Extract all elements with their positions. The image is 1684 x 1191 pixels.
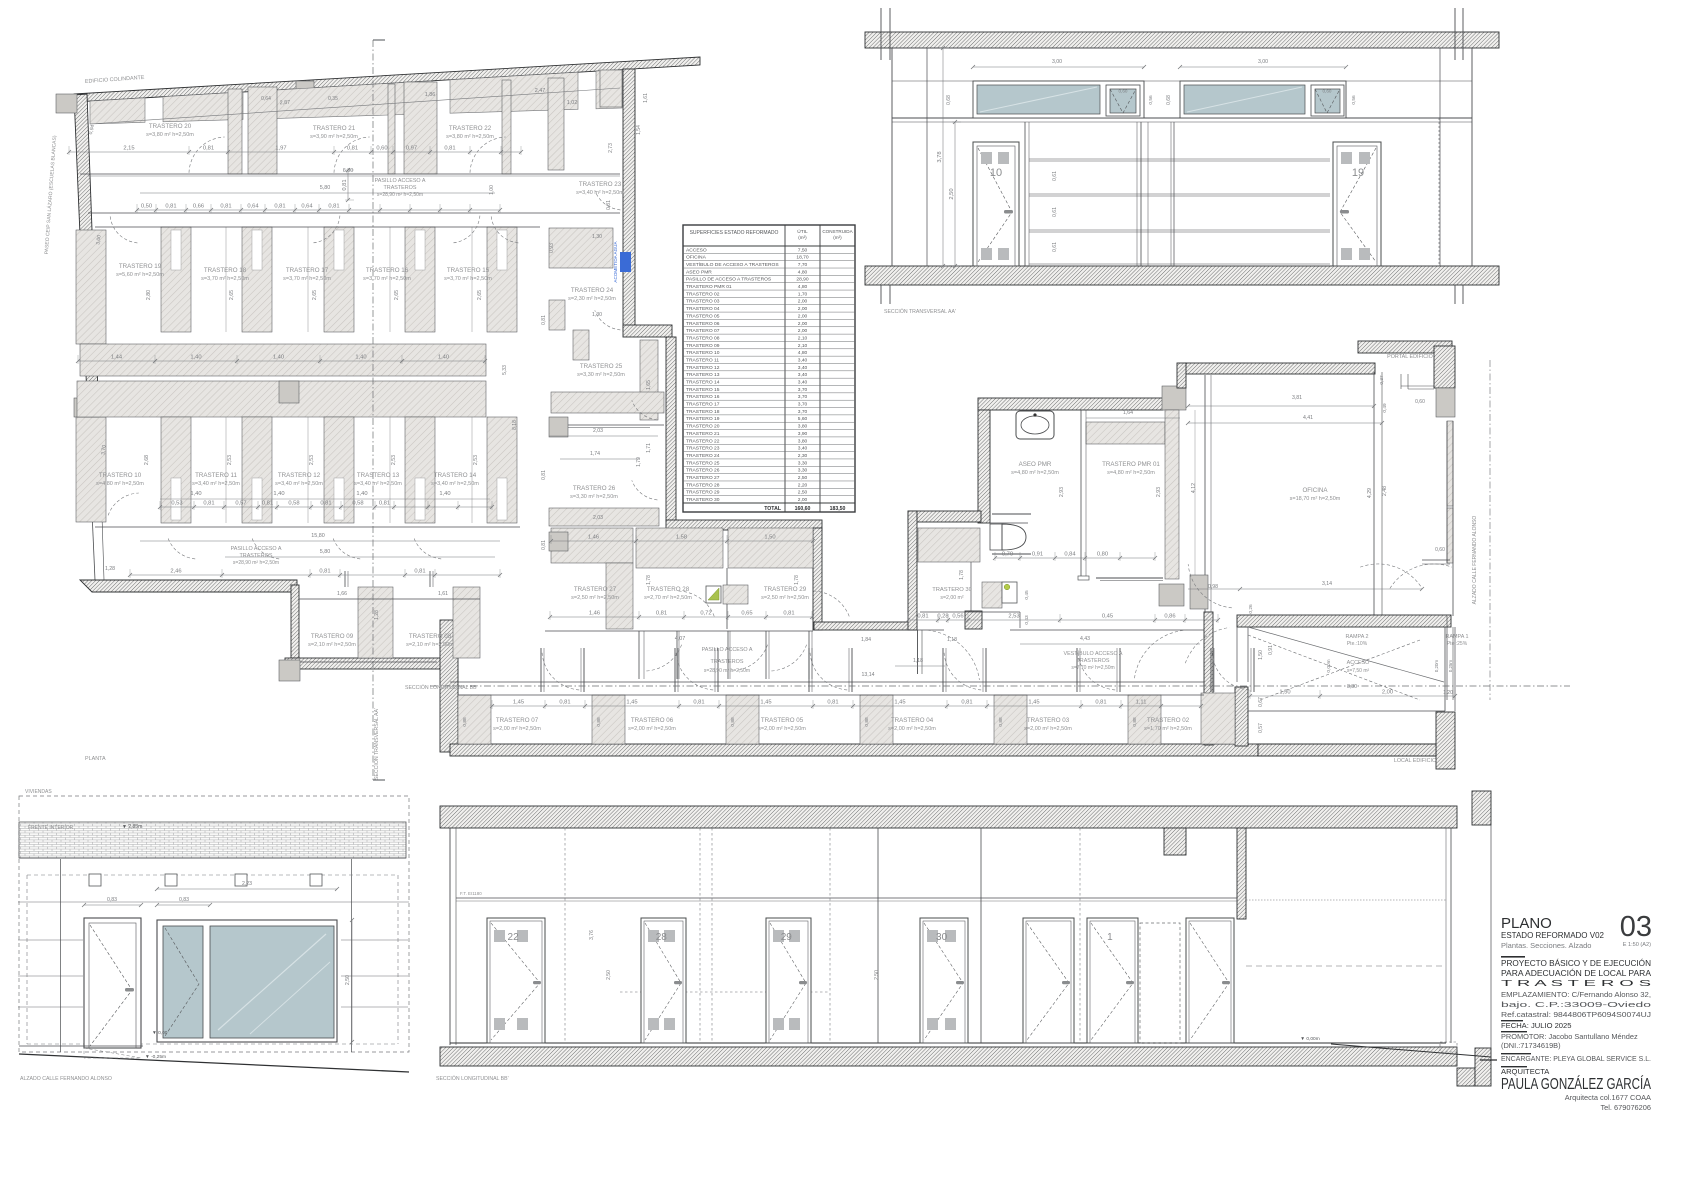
svg-text:TRASTERO 25: TRASTERO 25 — [580, 363, 623, 370]
svg-text:2,48: 2,48 — [1382, 486, 1388, 496]
svg-text:ASEO PMR: ASEO PMR — [1019, 461, 1052, 468]
svg-text:FRENTE INTERIOR: FRENTE INTERIOR — [28, 825, 74, 831]
svg-text:2,68: 2,68 — [144, 455, 150, 465]
svg-text:2,65: 2,65 — [229, 290, 235, 300]
svg-text:0,88: 0,88 — [864, 717, 870, 727]
svg-text:3,70: 3,70 — [798, 409, 808, 415]
svg-text:1,40: 1,40 — [190, 355, 201, 361]
svg-text:0,57: 0,57 — [235, 501, 246, 507]
svg-text:0,86: 0,86 — [1164, 614, 1175, 620]
svg-text:2,00: 2,00 — [798, 328, 808, 334]
svg-text:10: 10 — [990, 167, 1002, 179]
svg-text:SECCIÓN LONGITUDINAL BB': SECCIÓN LONGITUDINAL BB' — [436, 1075, 509, 1082]
svg-text:SECCIÓN TRANSVERSAL AA': SECCIÓN TRANSVERSAL AA' — [373, 708, 380, 780]
svg-text:ACCESO: ACCESO — [1347, 660, 1370, 666]
svg-text:1,40: 1,40 — [355, 355, 366, 361]
svg-text:s=3,80 m² h=2,50m: s=3,80 m² h=2,50m — [146, 132, 194, 138]
svg-text:2,30: 2,30 — [798, 453, 808, 459]
svg-text:1,50: 1,50 — [1258, 650, 1264, 660]
svg-text:0,81: 0,81 — [541, 470, 547, 480]
svg-text:0,81: 0,81 — [328, 204, 339, 210]
svg-text:PORTAL EDIFICIO: PORTAL EDIFICIO — [1387, 354, 1433, 360]
svg-text:2,03: 2,03 — [593, 515, 603, 521]
svg-text:TRASTERO 04: TRASTERO 04 — [891, 717, 934, 724]
svg-text:3,40: 3,40 — [798, 372, 808, 378]
svg-text:TRASTERO 10: TRASTERO 10 — [99, 472, 142, 479]
svg-text:TRASTERO 24: TRASTERO 24 — [686, 453, 720, 459]
svg-text:0,93: 0,93 — [549, 243, 555, 253]
svg-text:0,65: 0,65 — [741, 611, 752, 617]
svg-text:s=4,80 m² h=2,50m: s=4,80 m² h=2,50m — [96, 481, 144, 487]
svg-text:TRASTERO 26: TRASTERO 26 — [686, 468, 720, 474]
svg-text:0,88: 0,88 — [596, 717, 602, 727]
svg-text:2,00: 2,00 — [798, 313, 808, 319]
svg-text:ÚTIL: ÚTIL — [797, 228, 808, 235]
svg-text:0,88: 0,88 — [730, 717, 736, 727]
svg-text:1,45: 1,45 — [626, 700, 637, 706]
svg-text:2,47: 2,47 — [535, 88, 546, 94]
svg-text:1,61: 1,61 — [643, 93, 649, 103]
svg-text:(DNI.:71734619B): (DNI.:71734619B) — [1501, 1041, 1561, 1050]
svg-text:0,81: 0,81 — [165, 204, 176, 210]
svg-text:1,74: 1,74 — [590, 451, 600, 457]
svg-text:1,30: 1,30 — [592, 234, 602, 240]
svg-text:TRASTERO 04: TRASTERO 04 — [686, 306, 720, 312]
svg-text:2,65: 2,65 — [312, 290, 318, 300]
svg-text:PROMOTOR: Jacobo Santullano Mé: PROMOTOR: Jacobo Santullano Méndez — [1501, 1032, 1638, 1041]
svg-text:0,88: 0,88 — [462, 717, 468, 727]
svg-text:1,40: 1,40 — [190, 491, 201, 497]
svg-text:4,12: 4,12 — [1191, 483, 1197, 493]
svg-text:1,97: 1,97 — [275, 146, 286, 152]
svg-text:3,30: 3,30 — [798, 468, 808, 474]
svg-text:ESTADO REFORMADO V02: ESTADO REFORMADO V02 — [1501, 931, 1605, 940]
svg-text:4,29: 4,29 — [1367, 488, 1373, 498]
svg-text:1,54: 1,54 — [636, 125, 642, 135]
svg-text:2,53: 2,53 — [309, 455, 315, 465]
svg-text:2,73: 2,73 — [608, 143, 614, 153]
svg-text:TRASTERO 20: TRASTERO 20 — [149, 123, 192, 130]
svg-text:3,70: 3,70 — [798, 402, 808, 408]
svg-text:0,68: 0,68 — [946, 95, 952, 105]
svg-text:2,00: 2,00 — [798, 497, 808, 503]
svg-text:0,81: 0,81 — [559, 700, 570, 706]
svg-text:0,91: 0,91 — [1032, 552, 1043, 558]
svg-text:2,65: 2,65 — [477, 290, 483, 300]
svg-text:0,28: 0,28 — [937, 614, 948, 620]
svg-text:1: 1 — [1107, 932, 1113, 943]
svg-text:0,20m: 0,20m — [1434, 660, 1439, 673]
svg-text:0,81: 0,81 — [917, 614, 928, 620]
svg-text:TRASTEROS: TRASTEROS — [711, 659, 744, 665]
svg-text:183,50: 183,50 — [830, 506, 846, 512]
svg-text:0,88: 0,88 — [1132, 717, 1138, 727]
svg-text:0,81: 0,81 — [606, 200, 612, 210]
svg-text:0,81: 0,81 — [319, 569, 330, 575]
svg-text:s=2,10 m² h=2,50m: s=2,10 m² h=2,50m — [406, 642, 454, 648]
svg-text:▼ 0,00m: ▼ 0,00m — [1300, 1036, 1319, 1042]
svg-text:0,81: 0,81 — [827, 700, 838, 706]
svg-text:TRASTERO 29: TRASTERO 29 — [764, 586, 807, 593]
svg-text:s=4,80 m² h=2,50m: s=4,80 m² h=2,50m — [1011, 470, 1059, 476]
svg-text:TRASTERO 22: TRASTERO 22 — [686, 438, 720, 444]
svg-text:0,64: 0,64 — [301, 204, 313, 210]
svg-text:0,60: 0,60 — [1415, 399, 1425, 405]
svg-text:2,03: 2,03 — [593, 428, 603, 434]
svg-text:TRASTERO 02: TRASTERO 02 — [1147, 717, 1190, 724]
svg-text:3,40: 3,40 — [798, 365, 808, 371]
svg-text:s=3,40 m² h=2,50m: s=3,40 m² h=2,50m — [192, 481, 240, 487]
svg-text:TRASTERO 16: TRASTERO 16 — [686, 394, 720, 400]
svg-text:s=7,70 m² h=2,50m: s=7,70 m² h=2,50m — [1071, 665, 1114, 671]
svg-text:PLANTA: PLANTA — [85, 756, 106, 762]
svg-text:Arquitecta col.1677 COAA: Arquitecta col.1677 COAA — [1565, 1093, 1651, 1102]
svg-text:2,50: 2,50 — [874, 970, 880, 980]
svg-text:ASEO PMR: ASEO PMR — [686, 269, 712, 275]
svg-text:29: 29 — [781, 932, 793, 943]
svg-text:0,84: 0,84 — [1064, 552, 1076, 558]
svg-text:TRASTEROS: TRASTEROS — [1077, 658, 1110, 664]
svg-text:0,81: 0,81 — [220, 204, 231, 210]
svg-text:s=3,80 m² h=2,50m: s=3,80 m² h=2,50m — [446, 134, 494, 140]
svg-text:(m²): (m²) — [798, 235, 807, 240]
svg-text:03: 03 — [1620, 911, 1652, 943]
svg-text:2,80: 2,80 — [146, 290, 152, 300]
svg-text:LOCAL EDIFICIO: LOCAL EDIFICIO — [1394, 758, 1436, 764]
svg-text:T R A S T E R O S: T R A S T E R O S — [1501, 979, 1652, 988]
svg-text:1,66: 1,66 — [337, 591, 347, 597]
svg-text:1,45: 1,45 — [513, 700, 524, 706]
svg-text:TRASTERO 11: TRASTERO 11 — [195, 472, 237, 479]
svg-text:2,50: 2,50 — [606, 970, 612, 980]
svg-text:VIVIENDAS: VIVIENDAS — [25, 789, 52, 795]
svg-text:0,45: 0,45 — [1024, 590, 1030, 600]
svg-text:3,40: 3,40 — [798, 380, 808, 386]
svg-text:1,86: 1,86 — [425, 92, 436, 98]
svg-text:TRASTERO 13: TRASTERO 13 — [686, 372, 720, 378]
svg-text:0,26: 0,26 — [1248, 604, 1254, 614]
svg-text:8,30: 8,30 — [1347, 684, 1357, 690]
svg-text:TRASTERO 19: TRASTERO 19 — [119, 263, 162, 270]
svg-text:TRASTERO 18: TRASTERO 18 — [686, 409, 720, 415]
svg-text:TRASTERO 21: TRASTERO 21 — [313, 125, 356, 132]
svg-text:28,90: 28,90 — [796, 277, 809, 283]
svg-text:1,40: 1,40 — [273, 491, 284, 497]
svg-text:1,00: 1,00 — [489, 185, 495, 195]
svg-text:3,81: 3,81 — [1292, 395, 1302, 401]
svg-text:TRASTERO 05: TRASTERO 05 — [761, 717, 804, 724]
svg-text:s=3,40 m² h=2,50m: s=3,40 m² h=2,50m — [275, 481, 323, 487]
svg-text:0,00m: 0,00m — [1326, 659, 1332, 672]
svg-text:3,14: 3,14 — [1322, 581, 1332, 587]
svg-text:1,46: 1,46 — [589, 611, 600, 617]
svg-text:Plantas. Secciones. Alzado: Plantas. Secciones. Alzado — [1501, 941, 1591, 950]
svg-text:TRASTERO 05: TRASTERO 05 — [686, 313, 720, 319]
svg-text:2,20: 2,20 — [798, 482, 808, 488]
svg-text:3,70: 3,70 — [101, 445, 108, 456]
svg-text:1,45: 1,45 — [1028, 700, 1039, 706]
svg-text:0,61: 0,61 — [1052, 242, 1058, 252]
svg-text:0,72: 0,72 — [700, 611, 711, 617]
svg-text:0,81: 0,81 — [541, 315, 547, 325]
svg-text:0,61: 0,61 — [1052, 207, 1058, 217]
svg-text:ACCESO: ACCESO — [686, 247, 707, 253]
svg-text:TRASTERO 28: TRASTERO 28 — [647, 586, 690, 593]
svg-text:PARA ADECUACIÓN DE LOCAL PARA: PARA ADECUACIÓN DE LOCAL PARA — [1501, 968, 1652, 978]
svg-text:s=3,70 m² h=2,50m: s=3,70 m² h=2,50m — [363, 276, 411, 282]
svg-text:2,50: 2,50 — [949, 188, 955, 199]
svg-text:28: 28 — [656, 932, 668, 943]
svg-text:PAULA GONZÁLEZ GARCÍA: PAULA GONZÁLEZ GARCÍA — [1501, 1076, 1651, 1093]
svg-text:SUPERFICIES ESTADO REFORMADO: SUPERFICIES ESTADO REFORMADO — [690, 230, 779, 236]
svg-text:TRASTERO 09: TRASTERO 09 — [311, 633, 354, 640]
svg-text:0,35: 0,35 — [328, 96, 338, 102]
svg-text:PASILLO ACCESO A: PASILLO ACCESO A — [231, 546, 282, 552]
svg-text:2,00: 2,00 — [798, 321, 808, 327]
svg-text:160,60: 160,60 — [795, 506, 811, 512]
svg-text:0,81: 0,81 — [1095, 700, 1106, 706]
svg-text:0,83: 0,83 — [179, 897, 189, 903]
svg-text:1,58: 1,58 — [676, 535, 687, 541]
svg-text:0,56: 0,56 — [1148, 95, 1154, 105]
svg-text:4,80: 4,80 — [798, 350, 808, 356]
svg-text:1,78: 1,78 — [794, 575, 800, 585]
svg-text:0,64: 0,64 — [247, 204, 259, 210]
svg-text:TRASTERO 09: TRASTERO 09 — [686, 343, 720, 349]
svg-text:1,84: 1,84 — [861, 637, 871, 643]
svg-text:TRASTERO 02: TRASTERO 02 — [686, 291, 720, 297]
svg-text:PROYECTO BÁSICO Y DE EJECUCIÓN: PROYECTO BÁSICO Y DE EJECUCIÓN — [1501, 958, 1651, 968]
svg-text:TRASTERO PMR 01: TRASTERO PMR 01 — [686, 284, 732, 290]
svg-text:2,53: 2,53 — [391, 455, 397, 465]
svg-text:1,50: 1,50 — [764, 535, 775, 541]
svg-text:TRASTERO 28: TRASTERO 28 — [686, 482, 720, 488]
svg-text:0,88: 0,88 — [998, 717, 1004, 727]
svg-text:TRASTERO 06: TRASTERO 06 — [686, 321, 720, 327]
svg-text:TRASTERO 17: TRASTERO 17 — [686, 402, 720, 408]
svg-text:0,45: 0,45 — [1102, 614, 1113, 620]
svg-text:0,60: 0,60 — [1323, 89, 1332, 94]
svg-text:TRASTERO 13: TRASTERO 13 — [357, 472, 400, 479]
svg-text:s=3,30 m² h=2,50m: s=3,30 m² h=2,50m — [577, 372, 625, 378]
svg-text:TRASTERO 19: TRASTERO 19 — [686, 416, 720, 422]
svg-text:0,57: 0,57 — [1258, 723, 1264, 733]
svg-text:1,40: 1,40 — [439, 491, 450, 497]
svg-text:0,60: 0,60 — [1435, 547, 1445, 553]
svg-text:s=2,00 m² h=2,50m: s=2,00 m² h=2,50m — [493, 726, 541, 732]
svg-text:5,60: 5,60 — [798, 416, 808, 422]
svg-text:0,50: 0,50 — [141, 204, 152, 210]
svg-text:TRASTERO 30: TRASTERO 30 — [932, 587, 972, 593]
svg-text:s=2,00 m²: s=2,00 m² — [940, 595, 963, 601]
svg-text:2,00: 2,00 — [1382, 690, 1393, 696]
svg-text:4,41: 4,41 — [1303, 415, 1313, 421]
svg-text:2,93: 2,93 — [1156, 487, 1162, 497]
svg-text:0,25m: 0,25m — [1448, 660, 1453, 673]
svg-text:3,78: 3,78 — [937, 151, 943, 162]
svg-text:s=2,50 m² h=2,50m: s=2,50 m² h=2,50m — [571, 595, 619, 601]
svg-text:2,50: 2,50 — [798, 490, 808, 496]
svg-text:EMPLAZAMIENTO: C/Fernando Alon: EMPLAZAMIENTO: C/Fernando Alonso 32, — [1501, 990, 1651, 999]
svg-text:TRASTERO 07: TRASTERO 07 — [496, 717, 539, 724]
svg-text:TRASTERO 06: TRASTERO 06 — [631, 717, 674, 724]
svg-text:0,81: 0,81 — [320, 501, 331, 507]
svg-text:1,40: 1,40 — [273, 355, 284, 361]
svg-text:0,83: 0,83 — [107, 897, 117, 903]
svg-text:TRASTERO 03: TRASTERO 03 — [1027, 717, 1070, 724]
svg-text:TRASTERO 30: TRASTERO 30 — [686, 497, 720, 503]
svg-text:3,90: 3,90 — [798, 431, 808, 437]
svg-text:TRASTERO 23: TRASTERO 23 — [579, 181, 622, 188]
svg-text:TRASTEROS: TRASTEROS — [240, 553, 273, 559]
svg-text:TRASTERO 15: TRASTERO 15 — [447, 267, 490, 274]
svg-text:TRASTERO 12: TRASTERO 12 — [278, 472, 321, 479]
svg-text:s=3,70 m² h=2,50m: s=3,70 m² h=2,50m — [201, 276, 249, 282]
svg-text:TRASTERO 23: TRASTERO 23 — [686, 446, 720, 452]
svg-text:s=28,90 m² h=2,50m: s=28,90 m² h=2,50m — [233, 560, 279, 566]
svg-text:Tel. 679076206: Tel. 679076206 — [1600, 1103, 1651, 1112]
svg-text:Pte.:25%: Pte.:25% — [1447, 641, 1468, 647]
svg-text:3,00: 3,00 — [1052, 59, 1062, 65]
svg-text:3,70: 3,70 — [798, 387, 808, 393]
svg-text:0,81: 0,81 — [262, 501, 273, 507]
svg-text:TRASTERO 08: TRASTERO 08 — [686, 335, 720, 341]
svg-text:TRASTERO 16: TRASTERO 16 — [366, 267, 409, 274]
svg-text:▼ 0,00: ▼ 0,00 — [152, 1030, 168, 1036]
svg-text:0,64: 0,64 — [261, 96, 271, 102]
svg-text:1,78: 1,78 — [959, 570, 965, 580]
svg-text:s=2,00 m² h=2,50m: s=2,00 m² h=2,50m — [758, 726, 806, 732]
svg-text:0,81: 0,81 — [203, 146, 214, 152]
svg-text:0,81: 0,81 — [444, 146, 455, 152]
svg-text:RAMPA 2: RAMPA 2 — [1346, 634, 1369, 640]
svg-text:3,80: 3,80 — [798, 438, 808, 444]
svg-text:2,10: 2,10 — [798, 343, 808, 349]
svg-text:0,60: 0,60 — [376, 146, 387, 152]
svg-text:2,53: 2,53 — [473, 455, 479, 465]
svg-text:F.T. EI1180: F.T. EI1180 — [460, 891, 482, 896]
svg-text:TRASTERO 24: TRASTERO 24 — [571, 287, 614, 294]
svg-text:OFICINA: OFICINA — [686, 255, 707, 261]
svg-text:0,80: 0,80 — [1097, 552, 1108, 558]
svg-text:4,07: 4,07 — [675, 636, 686, 642]
svg-text:s=3,90 m² h=2,50m: s=3,90 m² h=2,50m — [310, 134, 358, 140]
svg-text:22: 22 — [508, 932, 520, 943]
svg-text:VESTÍBULO DE ACCESO A TRASTERO: VESTÍBULO DE ACCESO A TRASTEROS — [686, 261, 779, 268]
svg-text:5,80: 5,80 — [320, 185, 331, 191]
svg-text:1,44: 1,44 — [111, 355, 123, 361]
svg-text:TRASTERO 22: TRASTERO 22 — [449, 125, 492, 132]
svg-text:TRASTERO 27: TRASTERO 27 — [686, 475, 720, 481]
svg-text:s=2,00 m² h=2,50m: s=2,00 m² h=2,50m — [628, 726, 676, 732]
svg-text:TRASTERO 17: TRASTERO 17 — [286, 267, 329, 274]
svg-text:1,65: 1,65 — [646, 380, 652, 390]
svg-text:TRASTERO 27: TRASTERO 27 — [574, 586, 617, 593]
svg-text:1,40: 1,40 — [438, 355, 449, 361]
svg-text:2,00: 2,00 — [798, 299, 808, 305]
svg-text:0,81: 0,81 — [379, 501, 390, 507]
svg-text:▼ 2,85m: ▼ 2,85m — [122, 824, 142, 830]
svg-text:0,70: 0,70 — [1002, 552, 1013, 558]
svg-text:0,81: 0,81 — [961, 700, 972, 706]
svg-text:0,81: 0,81 — [342, 179, 348, 190]
svg-text:0,81: 0,81 — [274, 204, 285, 210]
svg-text:1,28: 1,28 — [374, 610, 380, 620]
svg-text:SECCIÓN LONGITUDINAL BB': SECCIÓN LONGITUDINAL BB' — [405, 684, 478, 691]
svg-text:2,65: 2,65 — [394, 290, 400, 300]
svg-text:1,64: 1,64 — [1123, 410, 1133, 416]
svg-text:SECCIÓN TRANSVERSAL AA': SECCIÓN TRANSVERSAL AA' — [884, 308, 956, 315]
svg-text:0,81: 0,81 — [414, 569, 425, 575]
svg-text:3,76: 3,76 — [589, 930, 595, 940]
svg-text:0,37: 0,37 — [1379, 375, 1385, 385]
svg-text:TRASTERO 03: TRASTERO 03 — [686, 299, 720, 305]
svg-text:PASILLO ACCESO A: PASILLO ACCESO A — [702, 647, 753, 653]
svg-text:s=3,70 m² h=2,50m: s=3,70 m² h=2,50m — [283, 276, 331, 282]
svg-text:TRASTERO 20: TRASTERO 20 — [686, 424, 720, 430]
svg-text:2,53: 2,53 — [1008, 614, 1019, 620]
svg-text:0,61: 0,61 — [1052, 171, 1058, 181]
svg-text:19: 19 — [1352, 167, 1364, 179]
svg-text:(m²): (m²) — [833, 235, 842, 240]
svg-text:2,50: 2,50 — [798, 475, 808, 481]
svg-text:0,81: 0,81 — [541, 540, 547, 550]
svg-text:s=2,10 m² h=2,50m: s=2,10 m² h=2,50m — [308, 642, 356, 648]
svg-text:0,81: 0,81 — [783, 611, 794, 617]
svg-text:3,80: 3,80 — [798, 424, 808, 430]
svg-text:0,91: 0,91 — [1268, 645, 1274, 655]
svg-text:1,40: 1,40 — [356, 491, 367, 497]
svg-text:0,49: 0,49 — [1382, 403, 1388, 413]
svg-text:ENCARGANTE: PLEYA GLOBAL SERVI: ENCARGANTE: PLEYA GLOBAL SERVICE S.L. — [1501, 1054, 1651, 1063]
svg-text:30: 30 — [936, 932, 948, 943]
svg-text:s=3,40 m² h=2,50m: s=3,40 m² h=2,50m — [576, 190, 624, 196]
svg-text:0,81: 0,81 — [203, 501, 214, 507]
svg-text:0,68: 0,68 — [1166, 95, 1172, 105]
svg-text:4,80: 4,80 — [798, 284, 808, 290]
svg-text:1,20: 1,20 — [1443, 690, 1453, 696]
svg-text:s=3,70 m² h=2,50m: s=3,70 m² h=2,50m — [444, 276, 492, 282]
svg-text:TRASTERO 15: TRASTERO 15 — [686, 387, 720, 393]
svg-text:0,81: 0,81 — [347, 146, 358, 152]
svg-text:1,02: 1,02 — [567, 100, 578, 106]
svg-text:1,61: 1,61 — [438, 591, 448, 597]
svg-text:8,18: 8,18 — [512, 420, 518, 430]
svg-text:PASILLO DE ACCESO A TRASTEROS: PASILLO DE ACCESO A TRASTEROS — [686, 277, 772, 283]
svg-text:s=18,70 m² h=2,50m: s=18,70 m² h=2,50m — [1290, 496, 1341, 502]
svg-text:1,45: 1,45 — [894, 700, 905, 706]
svg-text:TRASTERO 14: TRASTERO 14 — [434, 472, 477, 479]
svg-text:TRASTERO 18: TRASTERO 18 — [204, 267, 247, 274]
svg-text:2,46: 2,46 — [170, 569, 181, 575]
svg-text:FECHA: JULIO 2025: FECHA: JULIO 2025 — [1501, 1021, 1571, 1030]
svg-text:s=2,50 m² h=2,50m: s=2,50 m² h=2,50m — [761, 595, 809, 601]
svg-text:3,30: 3,30 — [798, 460, 808, 466]
svg-text:TRASTERO 07: TRASTERO 07 — [686, 328, 720, 334]
svg-text:1,46: 1,46 — [588, 535, 599, 541]
svg-text:s=2,70 m² h=2,50m: s=2,70 m² h=2,50m — [644, 595, 692, 601]
svg-text:15,80: 15,80 — [311, 533, 325, 539]
svg-text:0,60: 0,60 — [1119, 89, 1128, 94]
svg-text:ACOMETIDA AGUA: ACOMETIDA AGUA — [613, 241, 618, 283]
svg-text:TRASTERO 11: TRASTERO 11 — [686, 357, 719, 363]
svg-text:1,79: 1,79 — [636, 457, 642, 467]
svg-text:1,50: 1,50 — [1279, 690, 1290, 696]
svg-text:0,43: 0,43 — [1024, 615, 1030, 625]
svg-text:CONSTRUIDA: CONSTRUIDA — [822, 229, 853, 234]
svg-text:TRASTERO 14: TRASTERO 14 — [686, 380, 720, 386]
svg-text:PLANO: PLANO — [1501, 915, 1552, 932]
